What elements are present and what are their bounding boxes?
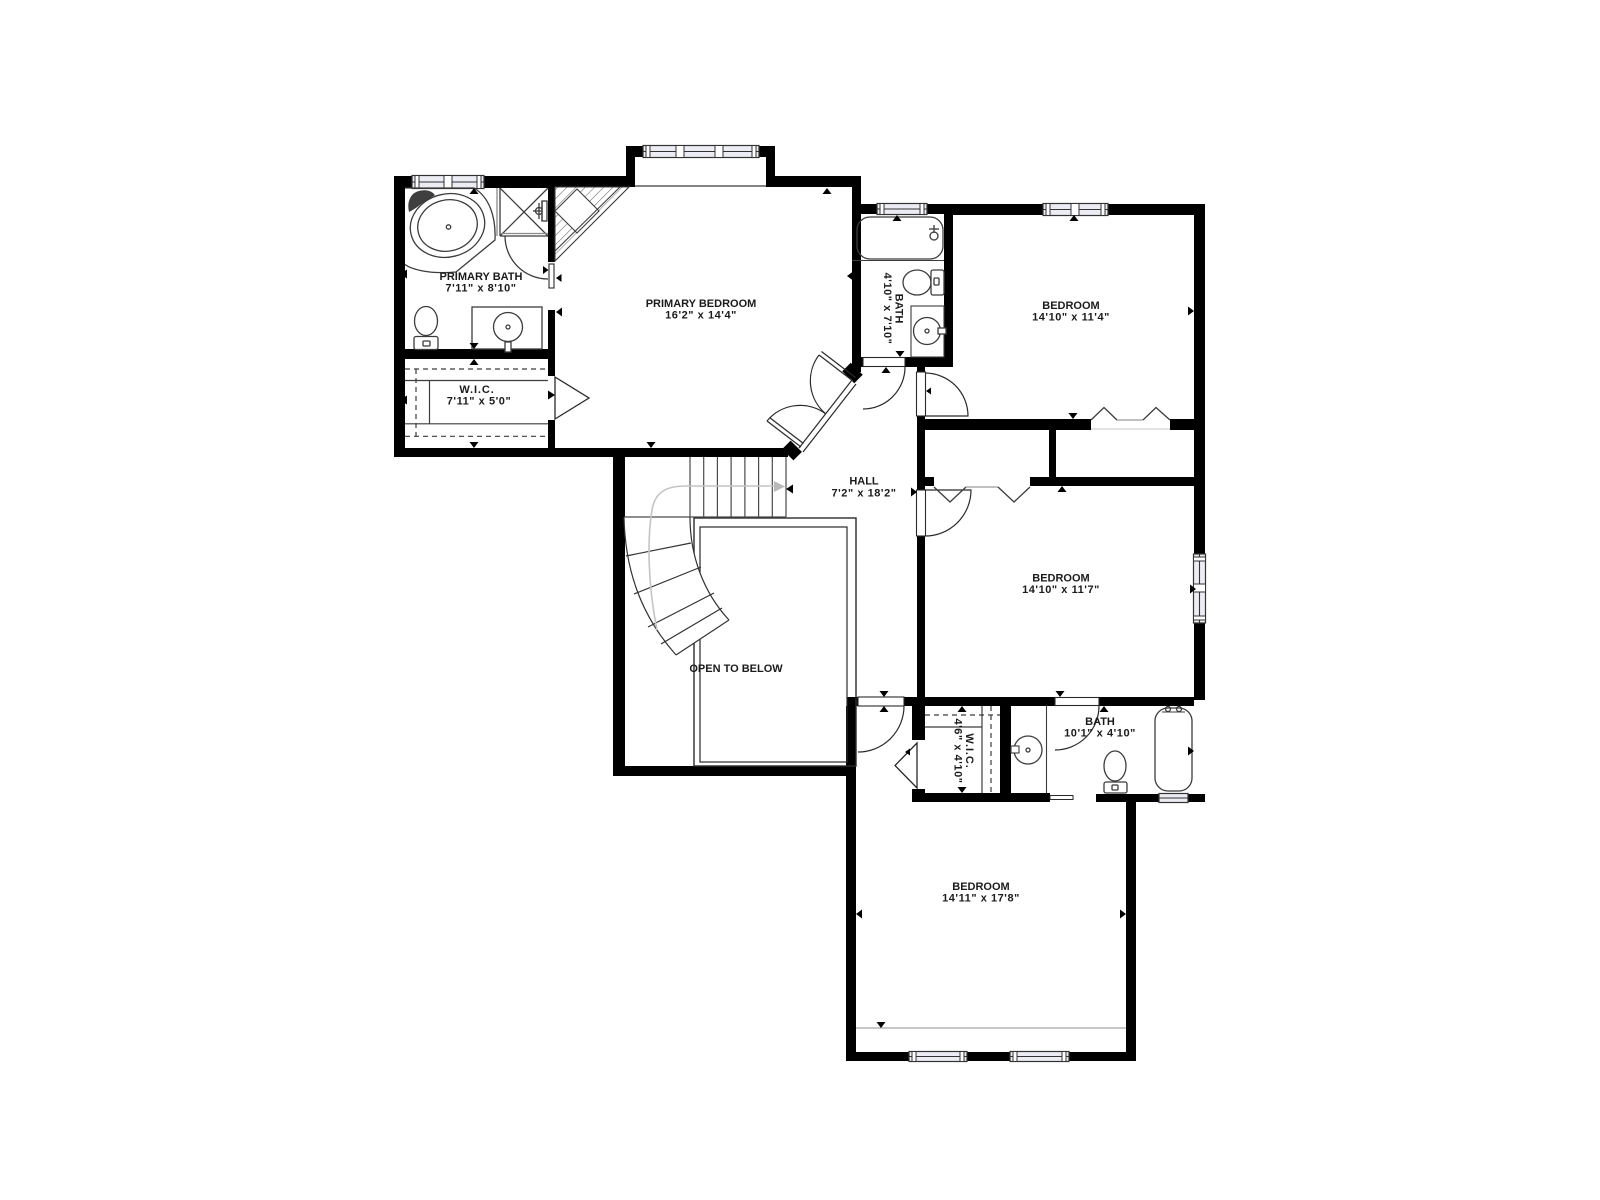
svg-text:BATH: BATH	[893, 294, 905, 324]
svg-text:14'11" x 17'8": 14'11" x 17'8"	[942, 893, 1020, 905]
svg-text:16'2" x 14'4": 16'2" x 14'4"	[665, 310, 737, 322]
svg-text:OPEN TO BELOW: OPEN TO BELOW	[689, 663, 783, 675]
svg-text:W.I.C.: W.I.C.	[459, 384, 494, 396]
svg-text:10'1" x 4'10": 10'1" x 4'10"	[1064, 728, 1136, 740]
svg-text:BEDROOM: BEDROOM	[1032, 573, 1089, 585]
svg-text:7'11" x 8'10": 7'11" x 8'10"	[445, 283, 516, 295]
svg-text:W.I.C.: W.I.C.	[963, 733, 975, 768]
svg-text:4'6" x 4'10": 4'6" x 4'10"	[952, 718, 964, 783]
svg-text:HALL: HALL	[849, 476, 879, 488]
svg-text:PRIMARY BEDROOM: PRIMARY BEDROOM	[646, 298, 757, 310]
svg-text:PRIMARY BATH: PRIMARY BATH	[440, 271, 523, 283]
svg-text:7'2" x 18'2": 7'2" x 18'2"	[831, 488, 896, 500]
svg-text:BATH: BATH	[1085, 716, 1115, 728]
svg-text:BEDROOM: BEDROOM	[952, 881, 1009, 893]
svg-text:14'10" x 11'7": 14'10" x 11'7"	[1022, 584, 1100, 596]
svg-text:14'10" x 11'4": 14'10" x 11'4"	[1032, 312, 1110, 324]
svg-text:4'10" x 7'10": 4'10" x 7'10"	[881, 273, 893, 345]
svg-text:7'11" x 5'0": 7'11" x 5'0"	[447, 396, 511, 408]
svg-text:BEDROOM: BEDROOM	[1042, 300, 1099, 312]
